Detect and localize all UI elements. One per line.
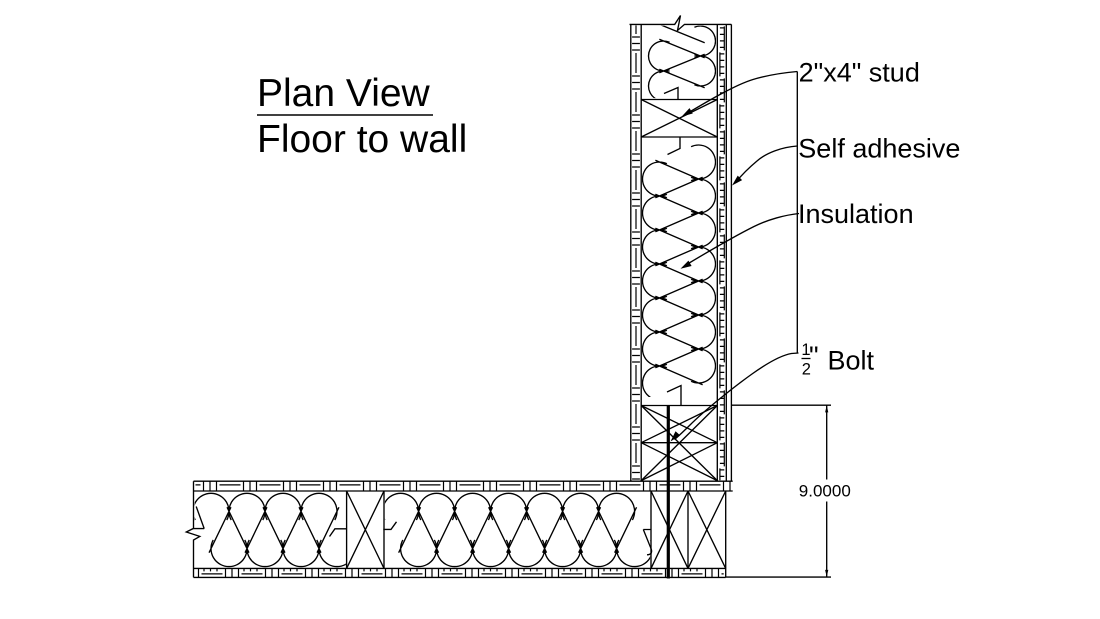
svg-text:Insulation: Insulation bbox=[798, 199, 914, 229]
svg-text:Bolt: Bolt bbox=[828, 345, 875, 375]
svg-text:Self adhesive: Self adhesive bbox=[798, 134, 960, 164]
svg-text:Floor to wall: Floor to wall bbox=[257, 118, 467, 161]
svg-text:2"x4" stud: 2"x4" stud bbox=[799, 57, 920, 87]
svg-text:Plan View: Plan View bbox=[257, 72, 431, 115]
svg-text:9.0000: 9.0000 bbox=[799, 482, 851, 501]
svg-text:": " bbox=[809, 341, 819, 371]
